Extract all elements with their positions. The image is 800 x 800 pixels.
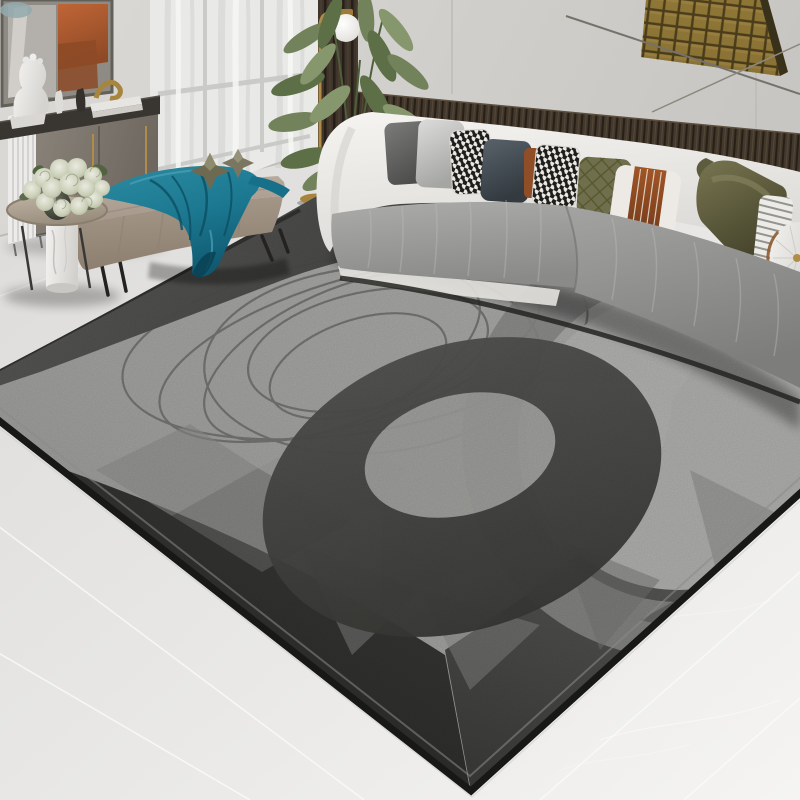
teal-reflection: [0, 2, 32, 18]
dark-figurine: [76, 88, 85, 112]
orange-abstract-art-dark: [58, 40, 98, 92]
pillow-houndstooth-2: [531, 144, 580, 208]
mirror-art: [0, 0, 112, 106]
bust-curl: [37, 58, 43, 64]
bust-curl: [23, 57, 30, 64]
white-figurine: [55, 90, 63, 114]
scene-canvas: [0, 0, 800, 800]
living-room-scene: Modern living room product photo: large …: [0, 0, 800, 800]
marble-base: [46, 222, 78, 292]
marble-base-bottom: [46, 283, 78, 293]
bust-curl: [30, 54, 37, 61]
